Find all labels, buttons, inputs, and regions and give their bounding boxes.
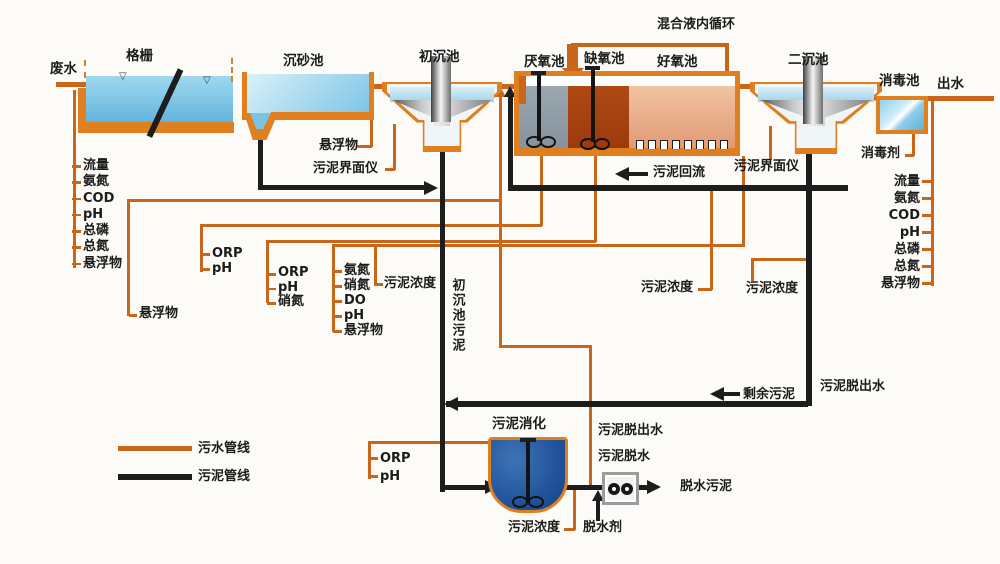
bracket-aerobic bbox=[332, 244, 335, 332]
line-secondary-interface-v bbox=[769, 126, 772, 160]
list-item: pH bbox=[840, 224, 920, 241]
line-digester-mlss-v bbox=[573, 489, 576, 530]
list-effluent-params: 流量 氨氮 COD pH 总磷 总氮 悬浮物 bbox=[840, 173, 920, 292]
label-primary-sludge: 初沉池污泥 bbox=[449, 278, 464, 353]
list-item: 氨氮 bbox=[840, 190, 920, 207]
pipe-return-sludge-h bbox=[508, 185, 848, 191]
label-aerobic: 好氧池 bbox=[657, 55, 698, 70]
label-secondary-mlss: 污泥浓度 bbox=[746, 282, 798, 297]
bracket-digester bbox=[368, 441, 371, 479]
line-primary-interface-v bbox=[393, 124, 396, 170]
label-primary-clarifier: 初沉池 bbox=[419, 50, 460, 65]
list-item: COD bbox=[83, 191, 122, 207]
list-item: pH bbox=[380, 468, 411, 486]
diffuser-icon bbox=[696, 140, 704, 149]
list-aerobic-params: 氨氮 硝氮 DO pH 悬浮物 bbox=[344, 263, 383, 338]
pipe-filtrate-return-v2 bbox=[589, 345, 592, 487]
list-item: 总氮 bbox=[83, 239, 122, 255]
bracket-anoxic bbox=[266, 240, 269, 303]
list-item: 总氮 bbox=[840, 258, 920, 275]
pipe-effluent bbox=[924, 96, 994, 101]
anaerobic-mixer-cap bbox=[531, 71, 546, 75]
diffuser-icon bbox=[648, 140, 656, 149]
dewatered-sludge-arrow-icon bbox=[647, 480, 661, 494]
tick-return-mlss bbox=[698, 288, 712, 291]
roller-icon bbox=[621, 483, 633, 495]
list-item: pH bbox=[212, 261, 243, 276]
list-anaerobic-params: ORP pH bbox=[212, 246, 243, 276]
channel-end-dash bbox=[231, 58, 233, 82]
list-item: 悬浮物 bbox=[83, 256, 122, 272]
pipe-return-sludge-v bbox=[508, 95, 513, 188]
diffuser-icon bbox=[672, 140, 680, 149]
grit-right-wall bbox=[369, 72, 374, 116]
excess-sludge-label-arrow-icon bbox=[710, 387, 724, 401]
line-anoxic-v bbox=[594, 156, 597, 242]
roller-icon bbox=[608, 483, 620, 495]
pipe-influent bbox=[56, 82, 88, 87]
label-excess-sludge: 剩余污泥 bbox=[743, 388, 795, 403]
label-disinfection: 消毒池 bbox=[879, 74, 920, 89]
tick-bioinlet-ss bbox=[129, 314, 137, 317]
label-disinfectant: 消毒剂 bbox=[861, 147, 900, 162]
list-item: DO bbox=[344, 293, 383, 308]
line-anaerobic-h bbox=[200, 224, 542, 227]
label-bar-screen: 格栅 bbox=[126, 49, 153, 64]
list-item: 氨氮 bbox=[83, 174, 122, 190]
legend-sludge-line bbox=[118, 474, 192, 480]
disinfection-tank bbox=[876, 96, 928, 134]
line-disinfectant-v bbox=[912, 132, 915, 156]
label-return-mlss: 污泥浓度 bbox=[641, 281, 693, 296]
label-digester-mlss: 污泥浓度 bbox=[508, 521, 560, 536]
list-item: 硝氮 bbox=[344, 278, 383, 293]
legend-sludge-label: 污泥管线 bbox=[198, 470, 250, 485]
anaerobic-impeller-icon bbox=[540, 136, 556, 148]
label-dewatered-sludge: 脱水污泥 bbox=[680, 480, 732, 495]
digester-impeller-icon bbox=[512, 496, 528, 508]
label-anoxic: 缺氧池 bbox=[584, 52, 625, 67]
list-item: 悬浮物 bbox=[840, 275, 920, 292]
bar-screen-left-wall bbox=[78, 88, 86, 133]
process-flow-diagram: 废水 格栅 沉砂池 初沉池 厌氧池 缺氧池 好氧池 二沉池 消毒池 出水 污泥消… bbox=[0, 0, 1000, 564]
bracket-anaerobic bbox=[200, 224, 203, 272]
return-sludge-label-shaft bbox=[628, 172, 648, 176]
grit-water bbox=[247, 74, 369, 116]
list-item: pH bbox=[83, 207, 122, 223]
line-bioinlet-h bbox=[127, 199, 502, 202]
pipe-secondary-sludge-v bbox=[806, 148, 812, 406]
pipe-dewatering-agent bbox=[596, 499, 600, 521]
pipe-grit-sludge-h bbox=[258, 185, 430, 190]
digester-mixer-cap bbox=[520, 438, 536, 442]
grit-floor bbox=[271, 112, 374, 120]
list-anoxic-params: ORP pH 硝氮 bbox=[278, 266, 309, 310]
tick-digester-mlss bbox=[564, 528, 575, 531]
excess-sludge-label-shaft bbox=[723, 392, 740, 396]
list-item: 总磷 bbox=[840, 241, 920, 258]
line-influent-bracket bbox=[73, 90, 76, 268]
diffuser-icon bbox=[636, 140, 644, 149]
aerobic-zone bbox=[629, 86, 735, 148]
label-secondary-interface: 污泥界面仪 bbox=[734, 160, 799, 175]
legend-sewage-line bbox=[118, 446, 192, 451]
digester-mixer-shaft bbox=[526, 440, 530, 502]
label-primary-interface: 污泥界面仪 bbox=[313, 162, 378, 177]
pipe-internal-recycle-h bbox=[571, 43, 729, 47]
line-effluent-bracket bbox=[931, 100, 934, 286]
return-sludge-label-arrow-icon bbox=[615, 167, 629, 181]
pipe-digester-feed bbox=[440, 485, 488, 490]
water-level-icon bbox=[203, 76, 211, 86]
label-secondary-clarifier: 二沉池 bbox=[788, 53, 829, 68]
pipe-filtrate-return-h bbox=[499, 345, 592, 348]
diffuser-icon bbox=[708, 140, 716, 149]
label-sludge-dewatering: 污泥脱水 bbox=[598, 450, 650, 465]
label-filtrate-mid: 污泥脱出水 bbox=[598, 424, 663, 439]
label-bioinlet-ss: 悬浮物 bbox=[139, 307, 178, 322]
list-item: 硝氮 bbox=[278, 295, 309, 310]
list-item: ORP bbox=[212, 246, 243, 261]
anoxic-impeller-icon bbox=[594, 138, 610, 150]
bar-screen-floor bbox=[86, 122, 234, 133]
label-dewatering-agent: 脱水剂 bbox=[583, 521, 622, 536]
label-grit-ss: 悬浮物 bbox=[319, 139, 358, 154]
line-anoxic-h bbox=[266, 240, 596, 243]
label-sludge-return: 污泥回流 bbox=[653, 166, 705, 181]
list-item: pH bbox=[344, 308, 383, 323]
list-item: pH bbox=[278, 281, 309, 296]
diffuser-icon bbox=[684, 140, 692, 149]
digester-impeller-icon bbox=[528, 496, 544, 508]
diffuser-icon bbox=[720, 140, 728, 149]
label-aerobic-mlss: 污泥浓度 bbox=[384, 277, 436, 292]
anoxic-mixer-shaft bbox=[591, 68, 595, 142]
line-aerobic-h bbox=[332, 244, 745, 247]
grit-sludge-arrow-icon bbox=[424, 181, 438, 195]
pipe-filtrate-return-v1 bbox=[499, 95, 502, 347]
line-bioinlet-v bbox=[127, 199, 130, 316]
label-digester: 污泥消化 bbox=[492, 417, 546, 432]
label-influent: 废水 bbox=[50, 62, 77, 77]
list-influent-params: 流量 氨氮 COD pH 总磷 总氮 悬浮物 bbox=[83, 158, 122, 272]
excess-sludge-arrow-icon bbox=[444, 397, 458, 411]
list-item: COD bbox=[840, 207, 920, 224]
bioreactor-inlet-baffle bbox=[519, 76, 526, 104]
grit-left-wall bbox=[242, 72, 247, 120]
list-item: 流量 bbox=[840, 173, 920, 190]
channel-end-dash bbox=[84, 60, 86, 78]
dewatering-machine bbox=[602, 472, 639, 505]
water-level-icon bbox=[119, 72, 127, 82]
pipe-primary-sludge-v bbox=[440, 140, 445, 492]
line-secondary-mlss-h bbox=[751, 258, 810, 261]
legend-sewage-label: 污水管线 bbox=[198, 442, 250, 457]
primary-clarifier-column bbox=[431, 56, 451, 122]
list-item: 总磷 bbox=[83, 223, 122, 239]
list-digester-params: ORP pH bbox=[380, 450, 411, 486]
label-filtrate-right: 污泥脱出水 bbox=[820, 380, 885, 395]
label-effluent: 出水 bbox=[937, 77, 964, 92]
diffuser-icon bbox=[660, 140, 668, 149]
line-return-mlss-v bbox=[710, 191, 713, 290]
label-internal-recycle: 混合液内循环 bbox=[657, 18, 735, 33]
line-digester-bracket-h bbox=[368, 441, 490, 444]
pipe-grit-sludge-v bbox=[258, 136, 263, 188]
pipe-internal-recycle-drop bbox=[567, 44, 578, 70]
list-item: 流量 bbox=[83, 158, 122, 174]
line-secondary-mlss-v bbox=[751, 258, 754, 281]
list-item: 氨氮 bbox=[344, 263, 383, 278]
line-anaerobic-v bbox=[540, 156, 543, 226]
list-item: ORP bbox=[380, 450, 411, 468]
list-item: ORP bbox=[278, 266, 309, 281]
label-grit-chamber: 沉砂池 bbox=[283, 54, 324, 69]
label-anaerobic: 厌氧池 bbox=[524, 55, 565, 70]
list-item: 悬浮物 bbox=[344, 323, 383, 338]
anaerobic-mixer-shaft bbox=[537, 73, 541, 141]
